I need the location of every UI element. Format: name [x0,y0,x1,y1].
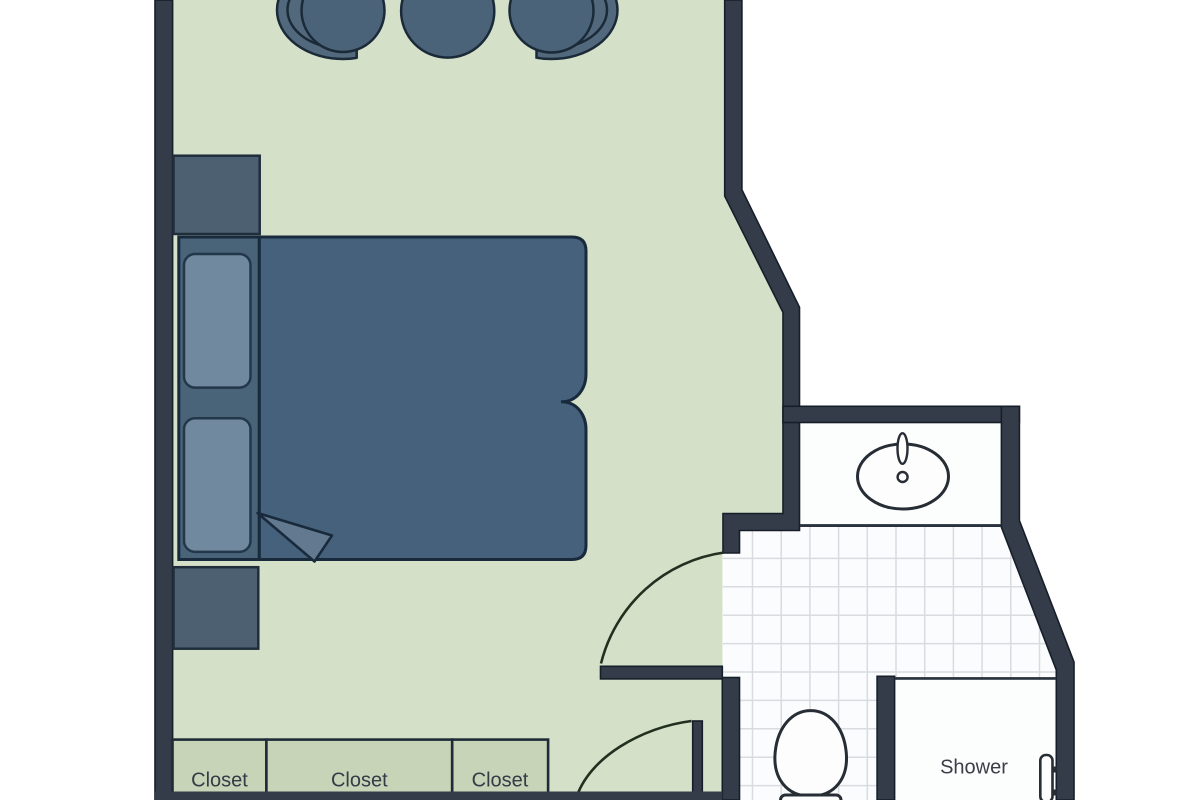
svg-text:Closet: Closet [472,770,529,792]
svg-text:Shower: Shower [940,757,1008,779]
svg-text:Closet: Closet [331,770,388,792]
svg-text:Closet: Closet [191,770,248,792]
